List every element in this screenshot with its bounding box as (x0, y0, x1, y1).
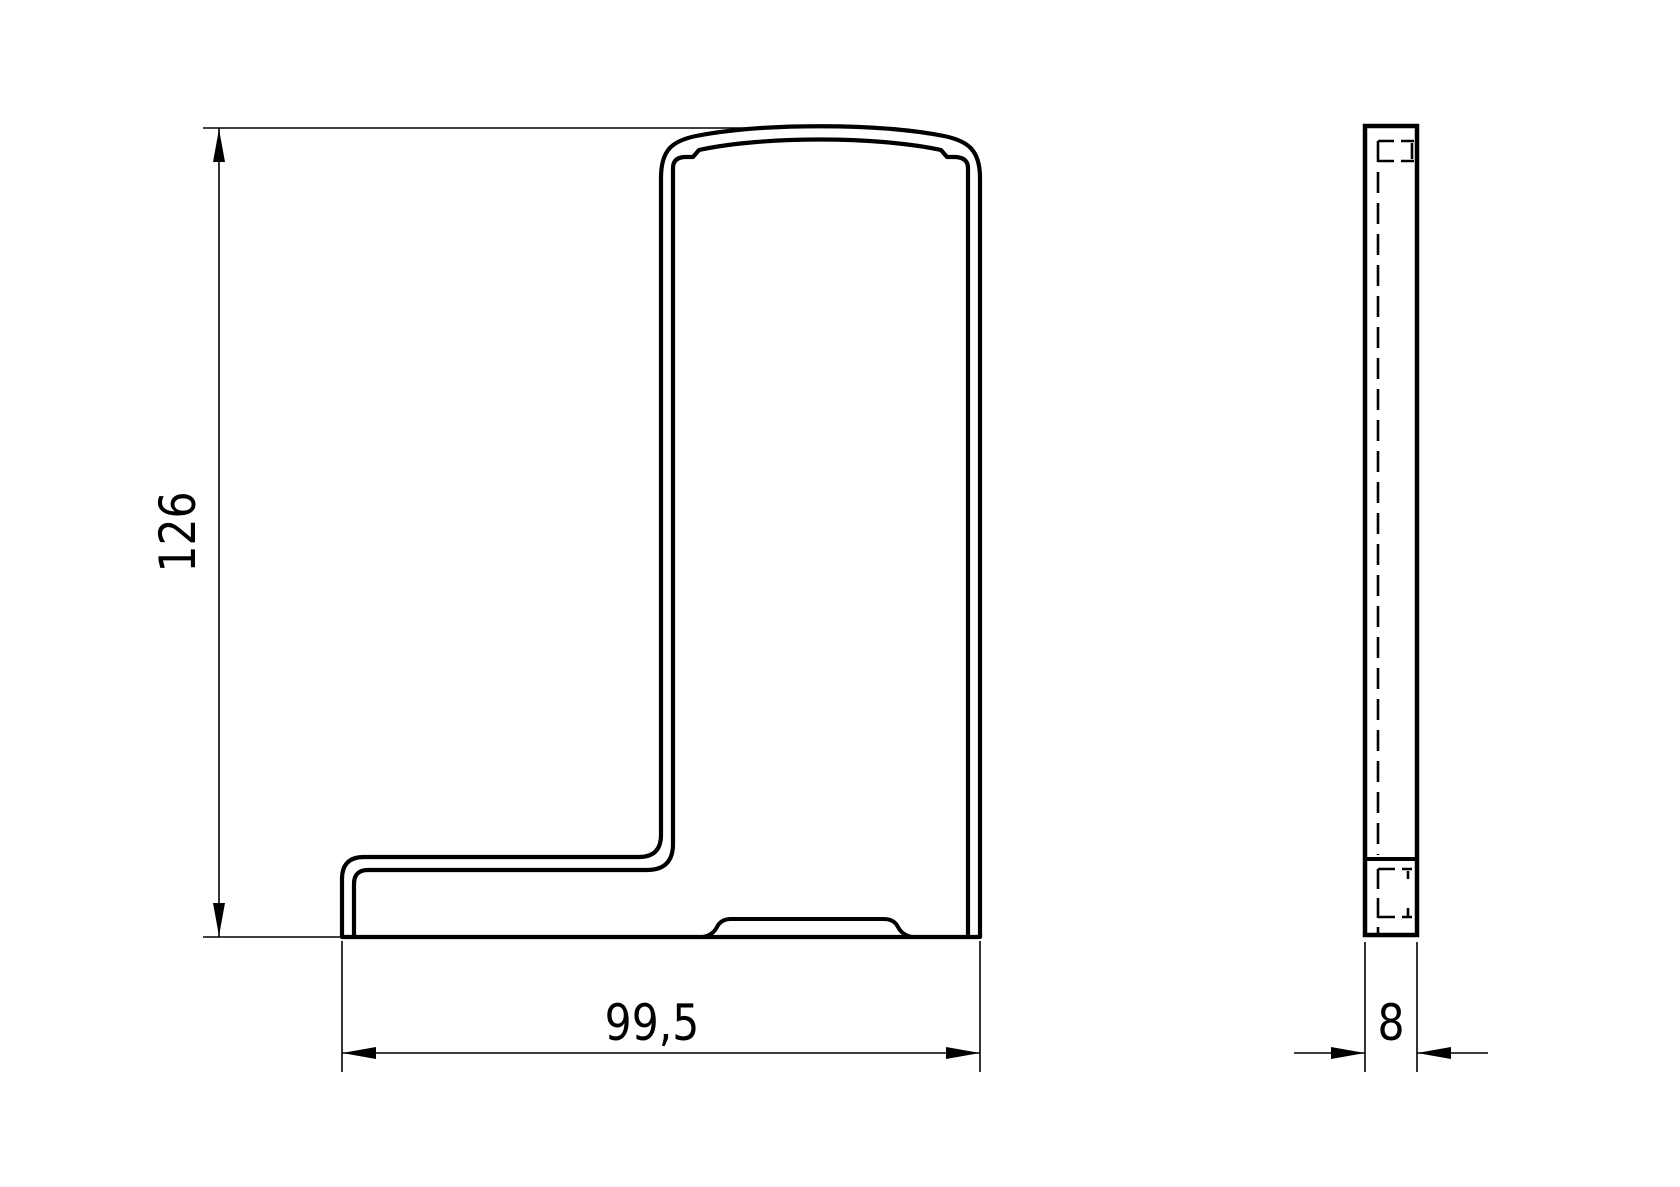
dimension-width-arrow-left (342, 1047, 376, 1059)
dimension-height-arrow-bottom (213, 903, 225, 936)
dimension-height-arrow-top (213, 129, 225, 162)
dimension-thickness-label: 8 (1377, 998, 1404, 1048)
front-bottom-ridge (703, 919, 912, 937)
side-outline (1365, 126, 1417, 935)
drawing-sheet: 126 99,5 8 (0, 0, 1680, 1187)
dimension-width-label: 99,5 (605, 998, 700, 1048)
front-outer-contour (342, 126, 980, 937)
drawing-linework (0, 0, 1680, 1187)
front-view (342, 126, 980, 937)
dimension-thickness-arrow-left (1331, 1047, 1365, 1059)
dimension-thickness-arrow-right (1417, 1047, 1451, 1059)
dimension-width-arrow-right (946, 1047, 980, 1059)
side-view (1365, 126, 1417, 935)
dimension-height-label: 126 (153, 491, 203, 572)
dimension-height (203, 128, 760, 937)
